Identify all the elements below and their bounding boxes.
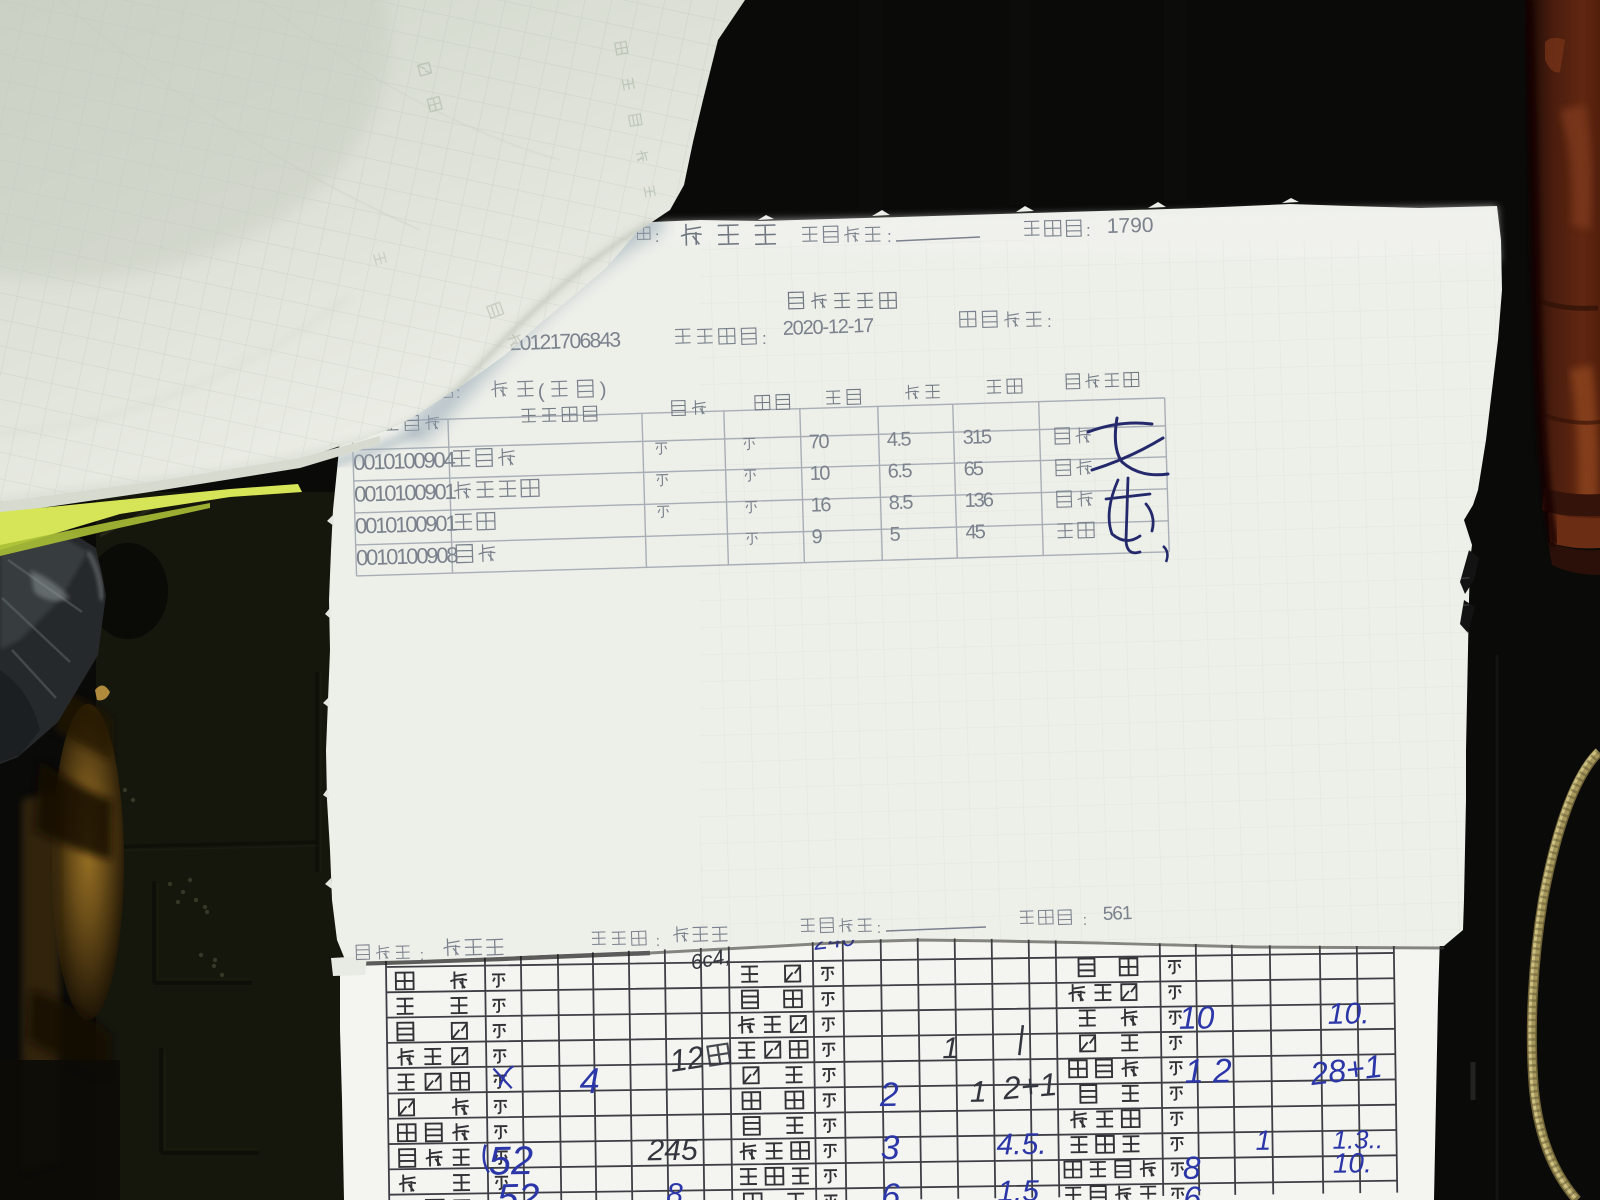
svg-text:2: 2 — [879, 1076, 900, 1114]
svg-text:): ) — [599, 379, 606, 401]
svg-text:1: 1 — [970, 1076, 987, 1109]
svg-text:10.: 10. — [1333, 1147, 1372, 1179]
svg-text:12: 12 — [667, 1039, 706, 1079]
svg-text:136: 136 — [964, 489, 994, 512]
svg-text:561: 561 — [1102, 903, 1132, 925]
svg-text:16: 16 — [810, 494, 831, 517]
svg-text::: : — [887, 227, 892, 246]
svg-text:4.5.: 4.5. — [996, 1128, 1047, 1162]
svg-text:2020-12-17: 2020-12-17 — [782, 315, 874, 340]
svg-text:3: 3 — [880, 1129, 900, 1167]
svg-text:4.5: 4.5 — [886, 428, 911, 451]
svg-text:315: 315 — [962, 426, 992, 449]
svg-text::: : — [1086, 221, 1091, 240]
svg-text:0010100908: 0010100908 — [356, 542, 459, 570]
svg-text:1: 1 — [1255, 1125, 1271, 1156]
svg-text::: : — [1047, 312, 1052, 331]
svg-text:0010100901: 0010100901 — [355, 511, 458, 539]
svg-text:10: 10 — [809, 462, 830, 485]
svg-text:8: 8 — [666, 1178, 683, 1200]
svg-text:6.5: 6.5 — [887, 460, 912, 483]
svg-text:1: 1 — [942, 1032, 959, 1065]
svg-text:6: 6 — [881, 1177, 901, 1200]
svg-text:2+1: 2+1 — [1000, 1066, 1058, 1106]
svg-text:1 2: 1 2 — [1184, 1052, 1232, 1091]
svg-text:(: ( — [537, 381, 545, 403]
svg-text:0010100901: 0010100901 — [354, 479, 457, 507]
svg-text:10.: 10. — [1328, 997, 1370, 1031]
svg-text:70: 70 — [808, 431, 829, 454]
svg-text::: : — [877, 920, 882, 937]
svg-text::: : — [656, 933, 661, 950]
svg-text:6: 6 — [1183, 1180, 1202, 1200]
svg-text::: : — [762, 329, 767, 348]
svg-text:45: 45 — [965, 521, 986, 544]
svg-text:1.5: 1.5 — [997, 1175, 1039, 1200]
svg-text:52: 52 — [497, 1177, 540, 1200]
svg-text:10: 10 — [1179, 999, 1215, 1035]
svg-text:8.5: 8.5 — [888, 492, 913, 515]
svg-text::: : — [420, 947, 425, 964]
svg-text:4: 4 — [579, 1060, 600, 1101]
svg-text:1790: 1790 — [1107, 214, 1154, 238]
svg-text:245: 245 — [646, 1134, 698, 1168]
svg-text:65: 65 — [963, 458, 984, 481]
svg-text::: : — [1083, 912, 1088, 929]
